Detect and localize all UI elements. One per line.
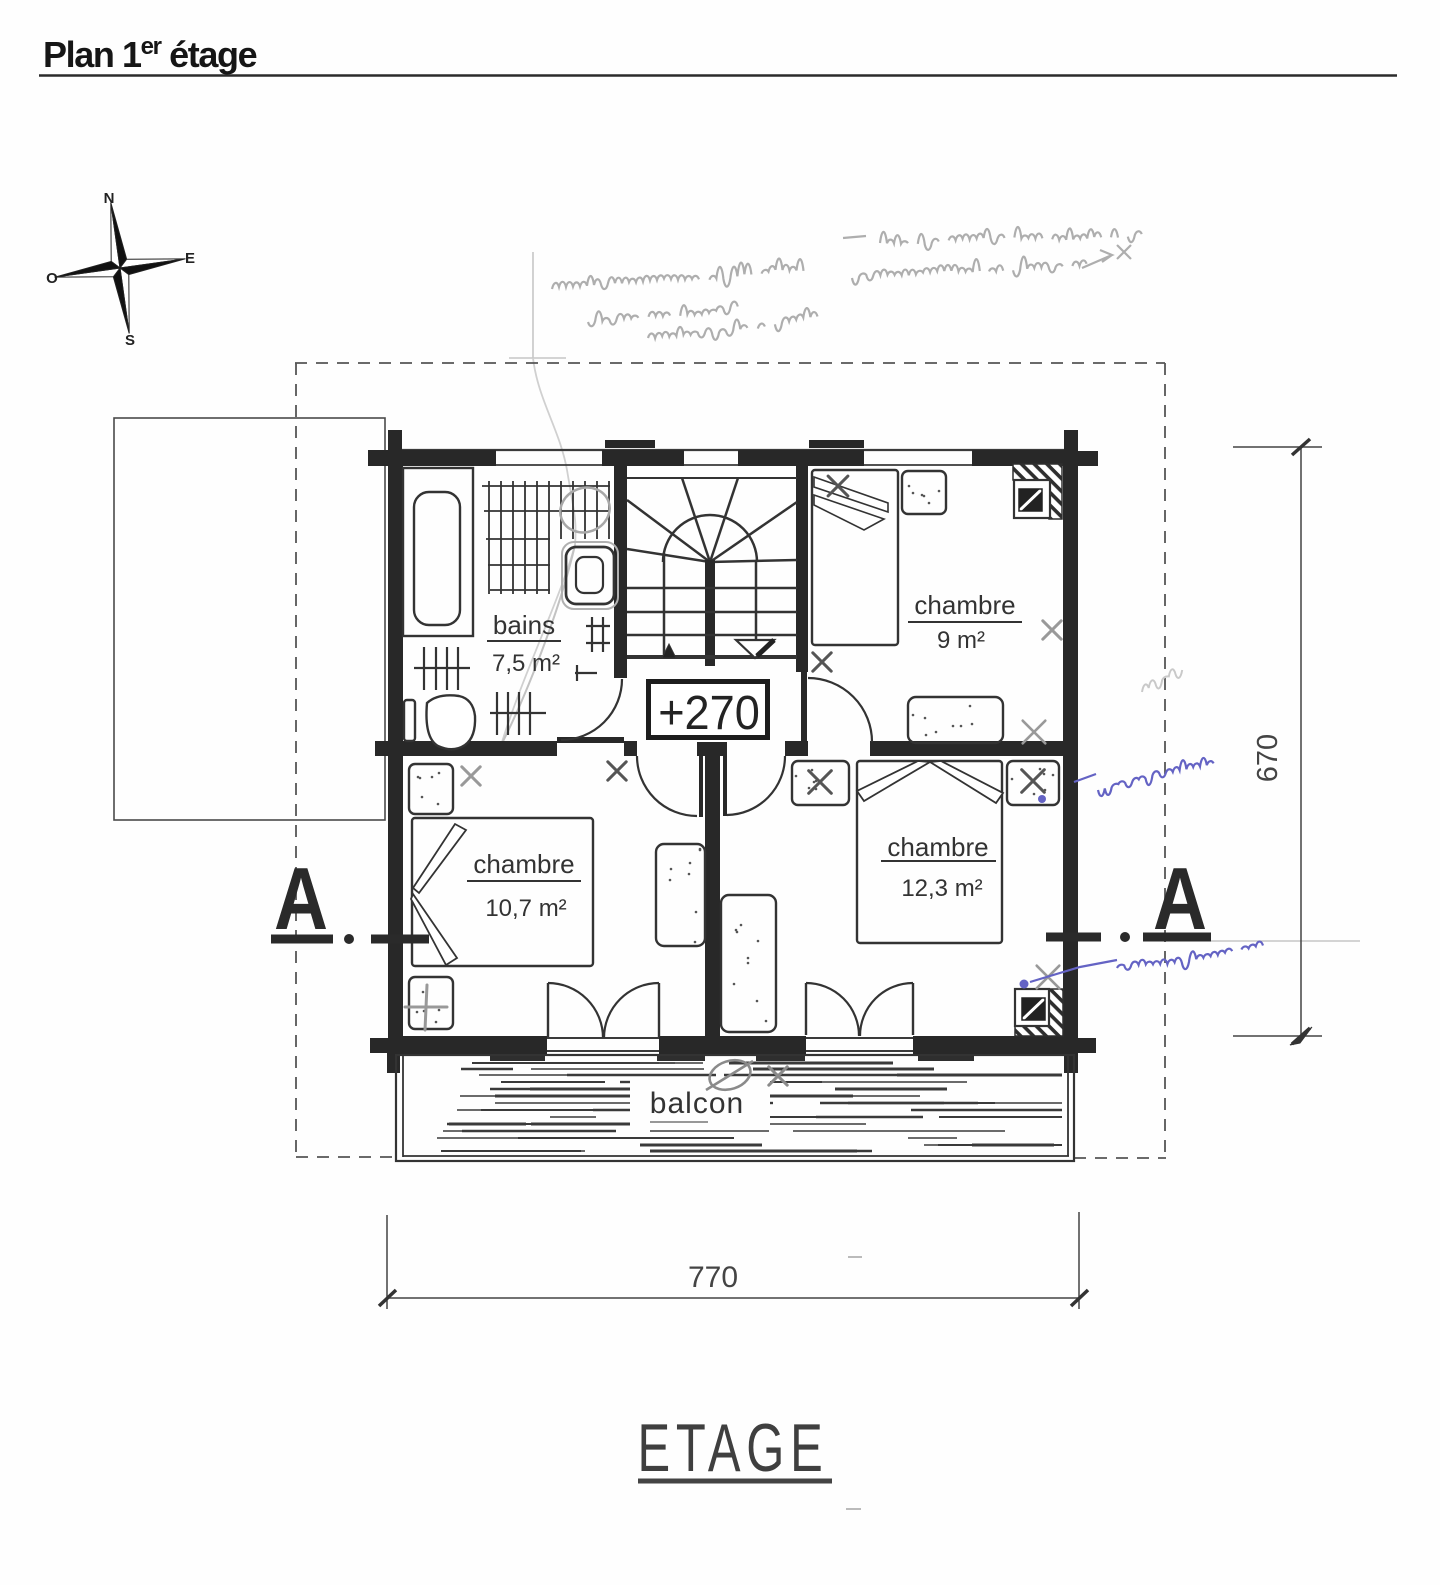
svg-text:10,7 m²: 10,7 m² [485, 895, 566, 922]
svg-text:E: E [185, 250, 195, 267]
svg-text:9 m²: 9 m² [937, 627, 985, 654]
svg-text:A: A [274, 850, 328, 948]
svg-text:balcon: balcon [650, 1087, 744, 1120]
svg-text:chambre: chambre [887, 832, 988, 862]
svg-text:N: N [104, 190, 115, 207]
svg-text:770: 770 [688, 1261, 738, 1294]
svg-text:S: S [125, 332, 135, 349]
svg-text:chambre: chambre [473, 849, 574, 879]
svg-text:O: O [46, 270, 58, 287]
svg-text:ETAGE: ETAGE [637, 1409, 828, 1486]
svg-text:chambre: chambre [914, 590, 1015, 620]
svg-text:670: 670 [1252, 734, 1284, 782]
svg-text:+270: +270 [658, 686, 760, 740]
svg-text:7,5 m²: 7,5 m² [492, 650, 560, 677]
svg-text:12,3 m²: 12,3 m² [901, 875, 982, 902]
svg-text:bains: bains [493, 610, 555, 640]
